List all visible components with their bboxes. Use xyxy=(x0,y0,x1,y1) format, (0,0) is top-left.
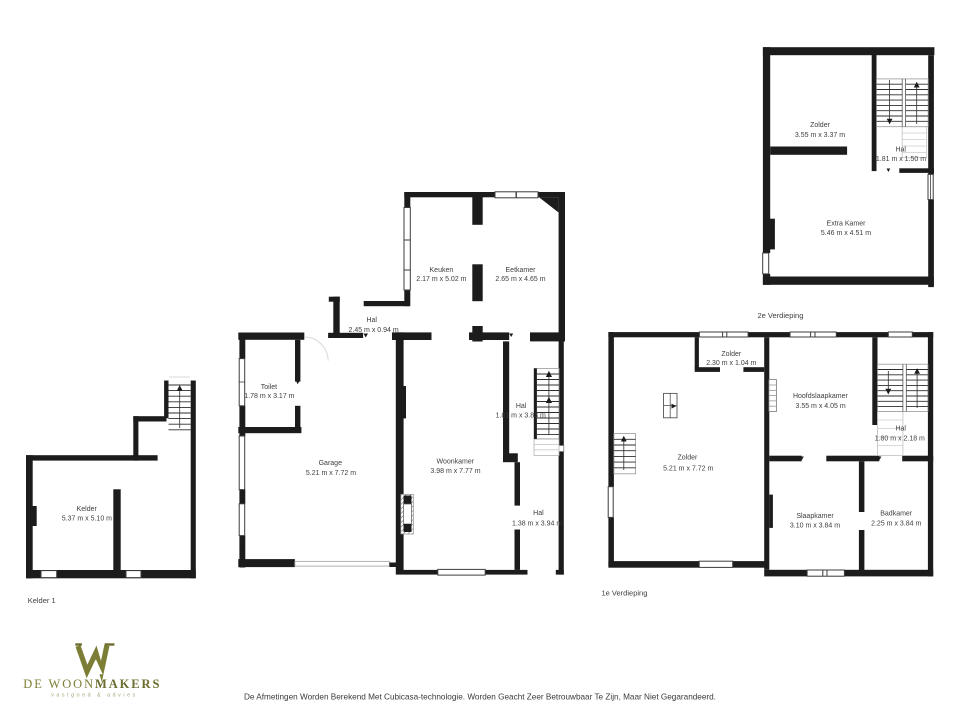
svg-text:5.21 m x 7.72 m: 5.21 m x 7.72 m xyxy=(306,470,356,477)
svg-text:Keuken: Keuken xyxy=(430,267,454,274)
svg-text:Hal: Hal xyxy=(895,425,906,432)
svg-text:Garage: Garage xyxy=(319,460,342,467)
svg-text:1.80 m x 2.18 m: 1.80 m x 2.18 m xyxy=(875,435,925,442)
svg-text:2e Verdieping: 2e Verdieping xyxy=(758,311,804,320)
svg-text:5.46 m x 4.51 m: 5.46 m x 4.51 m xyxy=(821,230,871,237)
svg-text:Toilet: Toilet xyxy=(261,384,277,391)
svg-text:vastgoed & advies: vastgoed & advies xyxy=(51,692,138,698)
svg-text:Zolder: Zolder xyxy=(721,351,742,358)
svg-text:5.21 m x 7.72 m: 5.21 m x 7.72 m xyxy=(663,466,713,473)
svg-text:3.10 m x 3.84 m: 3.10 m x 3.84 m xyxy=(790,522,840,529)
svg-text:Kelder: Kelder xyxy=(77,506,98,513)
svg-text:Hal: Hal xyxy=(516,403,527,410)
svg-text:Extra Kamer: Extra Kamer xyxy=(827,221,867,228)
svg-text:1.81 m x 3.83 m: 1.81 m x 3.83 m xyxy=(496,413,546,420)
svg-text:2.17 m x 5.02 m: 2.17 m x 5.02 m xyxy=(416,276,466,283)
svg-text:2.30 m x 1.04 m: 2.30 m x 1.04 m xyxy=(706,360,756,367)
svg-text:3.98 m x 7.77 m: 3.98 m x 7.77 m xyxy=(430,468,480,475)
svg-text:1.81 m x 1.50 m: 1.81 m x 1.50 m xyxy=(876,156,926,163)
svg-text:1.38 m x 3.94 m: 1.38 m x 3.94 m xyxy=(512,520,562,527)
svg-text:Woonkamer: Woonkamer xyxy=(436,458,474,465)
svg-text:Hal: Hal xyxy=(533,510,544,517)
svg-text:Zolder: Zolder xyxy=(810,122,831,129)
svg-text:Eetkamer: Eetkamer xyxy=(506,267,537,274)
svg-text:Hoofdslaapkamer: Hoofdslaapkamer xyxy=(793,393,849,400)
svg-text:2.45 m x 0.94 m: 2.45 m x 0.94 m xyxy=(348,327,398,334)
svg-text:Hal: Hal xyxy=(366,317,377,324)
svg-text:Badkamer: Badkamer xyxy=(880,511,913,518)
svg-text:3.55 m x 3.37 m: 3.55 m x 3.37 m xyxy=(795,132,845,139)
svg-text:1e Verdieping: 1e Verdieping xyxy=(602,588,648,597)
svg-text:2.25 m x 3.84 m: 2.25 m x 3.84 m xyxy=(871,521,921,528)
svg-text:Zolder: Zolder xyxy=(677,454,698,461)
svg-text:De Afmetingen Worden Berekend: De Afmetingen Worden Berekend Met Cubica… xyxy=(244,693,716,702)
svg-text:Hal: Hal xyxy=(895,146,906,153)
svg-text:DE WOONMAKERS: DE WOONMAKERS xyxy=(23,677,161,691)
svg-text:Kelder 1: Kelder 1 xyxy=(28,596,56,605)
svg-text:5.37 m x 5.10 m: 5.37 m x 5.10 m xyxy=(62,515,112,522)
svg-text:Slaapkamer: Slaapkamer xyxy=(796,513,834,520)
svg-text:2.65 m x 4.65 m: 2.65 m x 4.65 m xyxy=(495,276,545,283)
svg-text:3.55 m x 4.05 m: 3.55 m x 4.05 m xyxy=(795,403,845,410)
svg-text:1.78 m x 3.17 m: 1.78 m x 3.17 m xyxy=(244,393,294,400)
